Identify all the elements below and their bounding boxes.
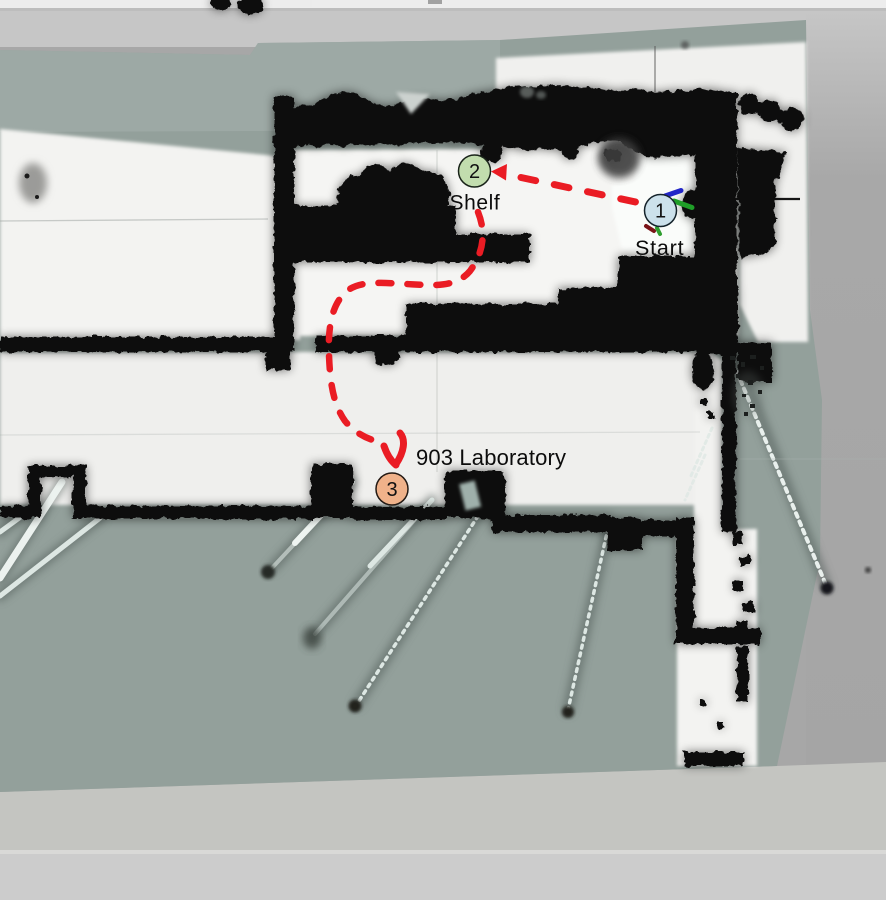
- svg-text:Shelf: Shelf: [450, 192, 501, 215]
- svg-text:Start: Start: [635, 236, 684, 260]
- svg-text:1: 1: [655, 201, 666, 223]
- svg-text:2: 2: [469, 161, 480, 183]
- svg-text:903 Laboratory: 903 Laboratory: [416, 445, 566, 470]
- svg-text:3: 3: [386, 479, 397, 501]
